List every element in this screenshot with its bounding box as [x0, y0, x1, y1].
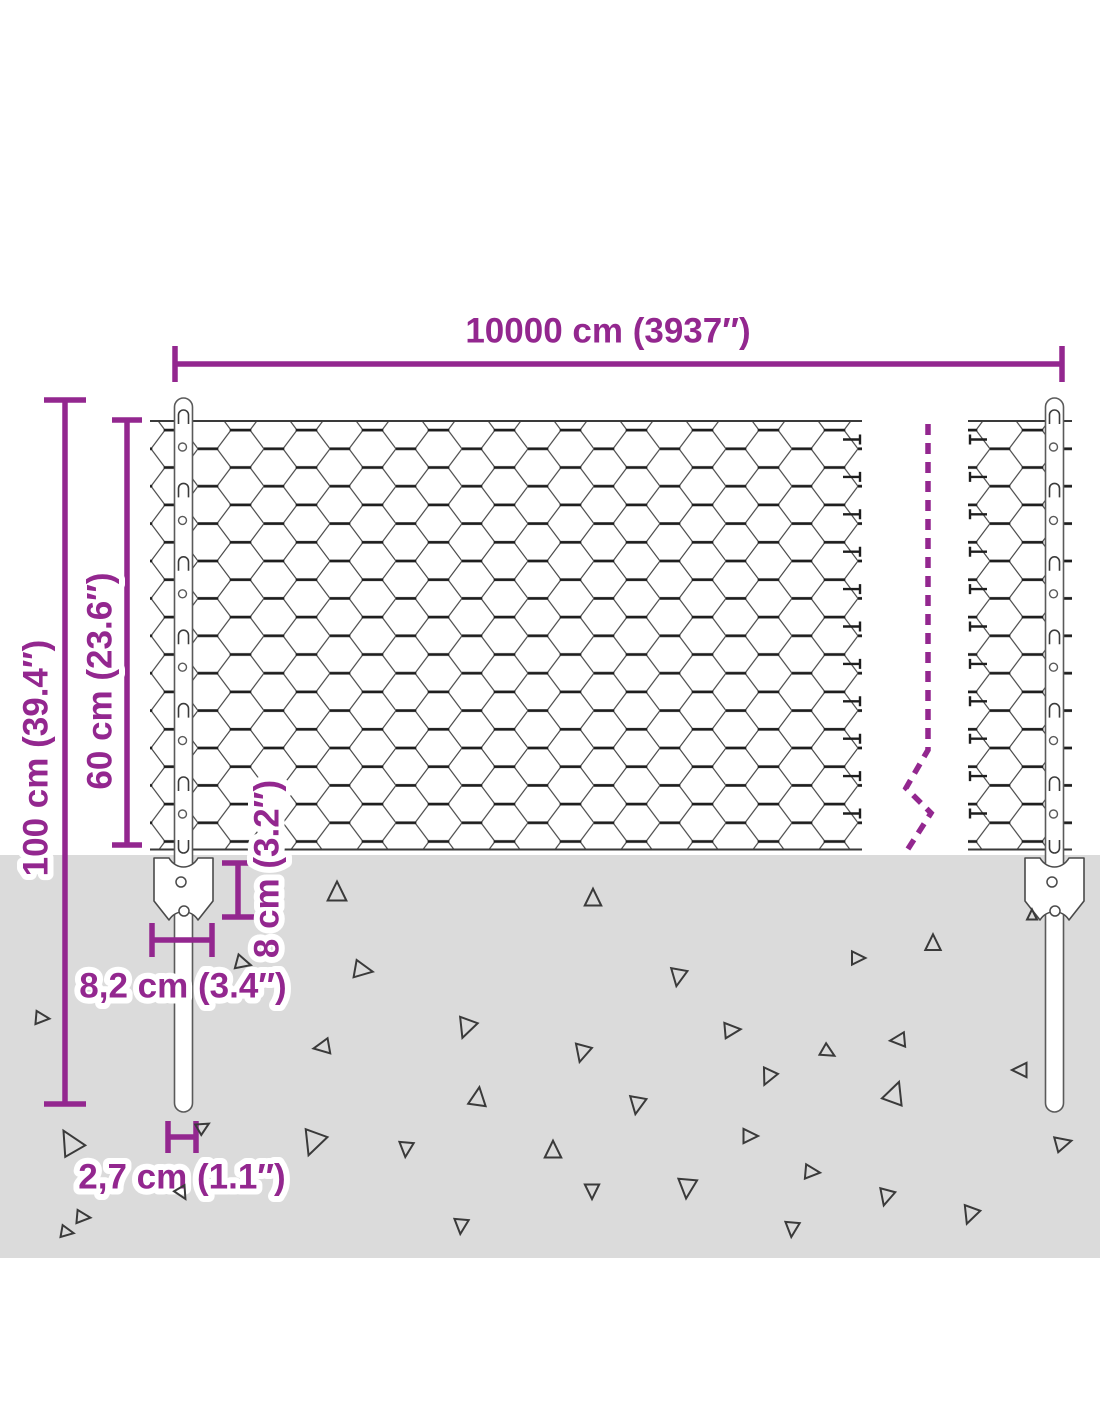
cut-wire-ends — [843, 435, 987, 819]
dim-plate-width-label: 8,2 cm (3.4″) — [79, 967, 286, 1006]
wire-mesh — [150, 421, 1072, 850]
dim-total-width-line — [175, 346, 1062, 382]
right-post — [1046, 398, 1064, 1112]
dim-anchor-depth-label: 8 cm (3.2″) — [248, 780, 287, 958]
fence-dimension-diagram: 10000 cm (3937″) 100 cm (39.4″) 60 cm (2… — [0, 0, 1100, 1422]
break-line — [906, 424, 931, 852]
dim-post-diameter-label: 2,7 cm (1.1″) — [78, 1158, 285, 1197]
dim-mesh-height-label: 60 cm (23.6″) — [81, 572, 120, 789]
left-post-anchor-plate — [154, 858, 213, 920]
dim-total-width-label: 10000 cm (3937″) — [465, 312, 750, 351]
dim-total-height-label: 100 cm (39.4″) — [17, 640, 56, 877]
right-post-anchor-plate — [1025, 858, 1084, 920]
